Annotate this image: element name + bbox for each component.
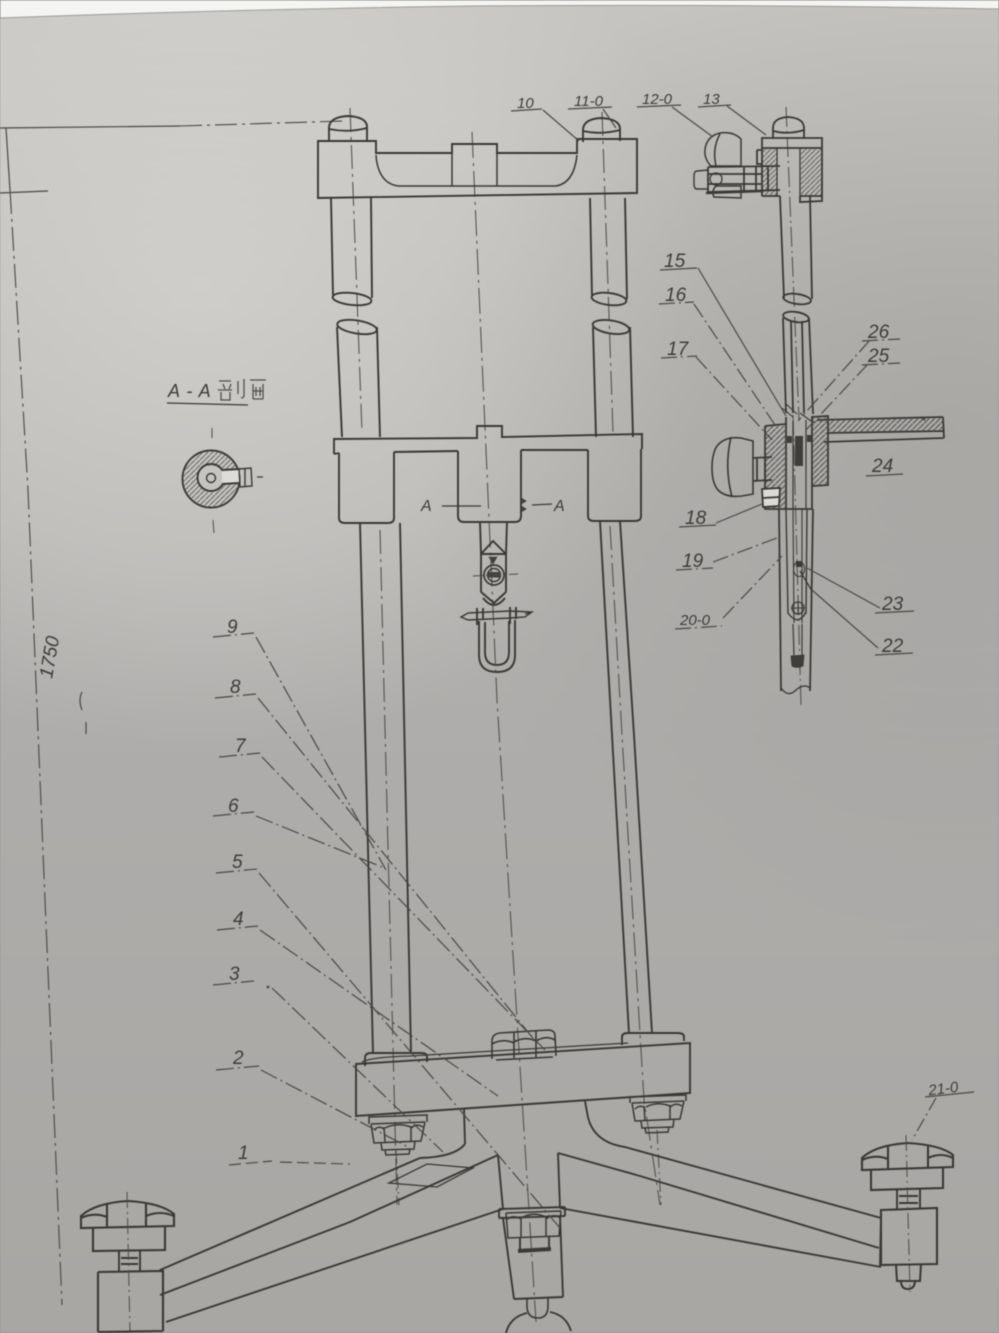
svg-text:1: 1	[238, 1143, 249, 1164]
svg-text:16: 16	[665, 285, 687, 306]
svg-text:A: A	[420, 498, 432, 515]
svg-text:24: 24	[871, 456, 893, 477]
svg-text:A - A: A - A	[167, 381, 212, 401]
svg-text:17: 17	[667, 339, 690, 360]
svg-text:A: A	[553, 498, 565, 515]
svg-text:5: 5	[232, 852, 243, 873]
svg-text:3: 3	[229, 964, 240, 985]
svg-text:26: 26	[867, 322, 890, 343]
svg-text:8: 8	[230, 677, 241, 698]
svg-text:25: 25	[867, 346, 890, 367]
svg-text:7: 7	[235, 736, 247, 757]
svg-text:2: 2	[232, 1048, 244, 1069]
svg-text:19: 19	[682, 551, 704, 572]
svg-text:4: 4	[233, 909, 244, 930]
